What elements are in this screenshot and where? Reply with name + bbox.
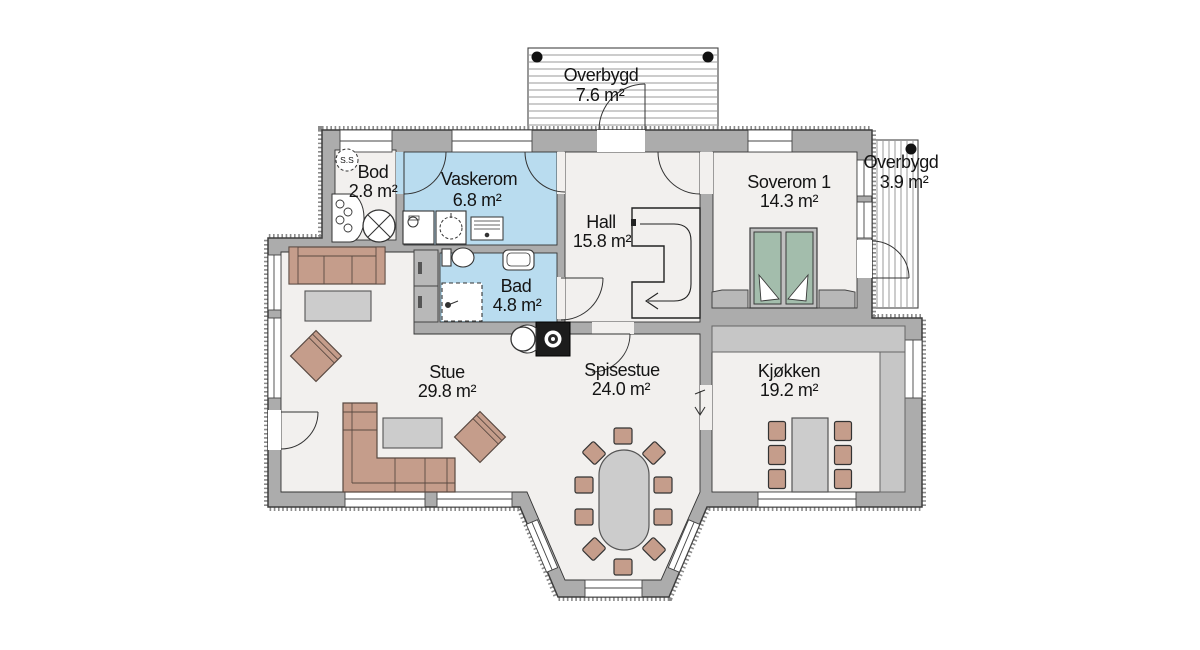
porch-post xyxy=(703,52,714,63)
label-ss-symbol: S.S xyxy=(340,155,354,165)
label-overbygd-top-area: 7.6 m² xyxy=(576,85,625,105)
washing-machine xyxy=(403,211,434,244)
coffee-table xyxy=(383,418,442,448)
label-vaskerom-name: Vaskerom xyxy=(441,169,518,189)
porch-post xyxy=(532,52,543,63)
dining-chair xyxy=(614,559,632,575)
opening-bad-hall xyxy=(557,277,565,319)
floor-plan: Overbygd 7.6 m² Overbygd 3.9 m² Bod 2.8 … xyxy=(0,0,1200,650)
window xyxy=(268,255,281,310)
window xyxy=(857,202,872,238)
kitchen-chair xyxy=(769,446,786,465)
tall-cabinet xyxy=(414,250,438,322)
kitchen-chair xyxy=(769,470,786,489)
shower xyxy=(442,283,482,321)
kitchen-chair xyxy=(835,446,852,465)
kitchen-chair xyxy=(835,470,852,489)
dining-chair xyxy=(575,477,593,493)
label-hall-area: 15.8 m² xyxy=(573,231,632,251)
window xyxy=(345,492,425,507)
kitchen-counter-top xyxy=(712,326,905,352)
label-stue-area: 29.8 m² xyxy=(418,381,477,401)
label-kjokken-name: Kjøkken xyxy=(758,361,820,381)
dining-chair xyxy=(654,509,672,525)
pipe-manifold xyxy=(332,194,364,242)
nightstand-right xyxy=(819,290,855,308)
kitchen-chair xyxy=(835,422,852,441)
opening-front-door xyxy=(597,130,645,152)
label-spisestue-area: 24.0 m² xyxy=(592,379,651,399)
window xyxy=(758,492,856,507)
nightstand-left xyxy=(712,290,748,308)
opening-hall-soverom xyxy=(700,152,713,194)
label-bod-area: 2.8 m² xyxy=(349,181,398,201)
floor-plan-page: Overbygd 7.6 m² Overbygd 3.9 m² Bod 2.8 … xyxy=(0,0,1200,650)
label-hall-name: Hall xyxy=(586,212,615,232)
window xyxy=(905,340,922,398)
opening-hall-spisestue xyxy=(592,322,634,334)
label-spisestue-name: Spisestue xyxy=(584,360,660,380)
chimney xyxy=(536,322,570,356)
dining-chair xyxy=(654,477,672,493)
window xyxy=(748,130,792,152)
opening-hall-vaskerom xyxy=(557,152,565,194)
stair-arrow-start xyxy=(631,219,636,226)
double-bed xyxy=(750,228,817,308)
label-bod-name: Bod xyxy=(358,162,389,182)
kitchen-chair xyxy=(769,422,786,441)
coffee-table xyxy=(305,291,371,321)
window xyxy=(437,492,512,507)
kitchen-counter-right xyxy=(880,352,905,492)
label-overbygd-right-area: 3.9 m² xyxy=(880,172,929,192)
dining-chair xyxy=(614,428,632,444)
label-soverom-name: Soverom 1 xyxy=(747,172,831,192)
opening-soverom-porch-door xyxy=(857,240,872,278)
label-kjokken-area: 19.2 m² xyxy=(760,380,819,400)
floor-drain xyxy=(471,217,503,240)
label-vaskerom-area: 6.8 m² xyxy=(453,190,502,210)
sofa-three-seat xyxy=(289,247,385,284)
toilet xyxy=(442,248,474,267)
window xyxy=(452,130,532,152)
label-overbygd-top-name: Overbygd xyxy=(564,65,639,85)
window xyxy=(585,580,642,597)
label-bad-name: Bad xyxy=(501,276,532,296)
dryer xyxy=(436,211,466,244)
window xyxy=(268,318,281,398)
label-bad-area: 4.8 m² xyxy=(493,295,542,315)
label-soverom-area: 14.3 m² xyxy=(760,191,819,211)
sink xyxy=(503,250,534,270)
dining-chair xyxy=(575,509,593,525)
water-heater xyxy=(363,210,395,242)
label-stue-name: Stue xyxy=(429,362,465,382)
opening-stue-exterior-door xyxy=(268,410,281,450)
kitchen-table xyxy=(792,418,828,492)
dining-table xyxy=(599,450,649,550)
label-overbygd-right-name: Overbygd xyxy=(864,152,939,172)
